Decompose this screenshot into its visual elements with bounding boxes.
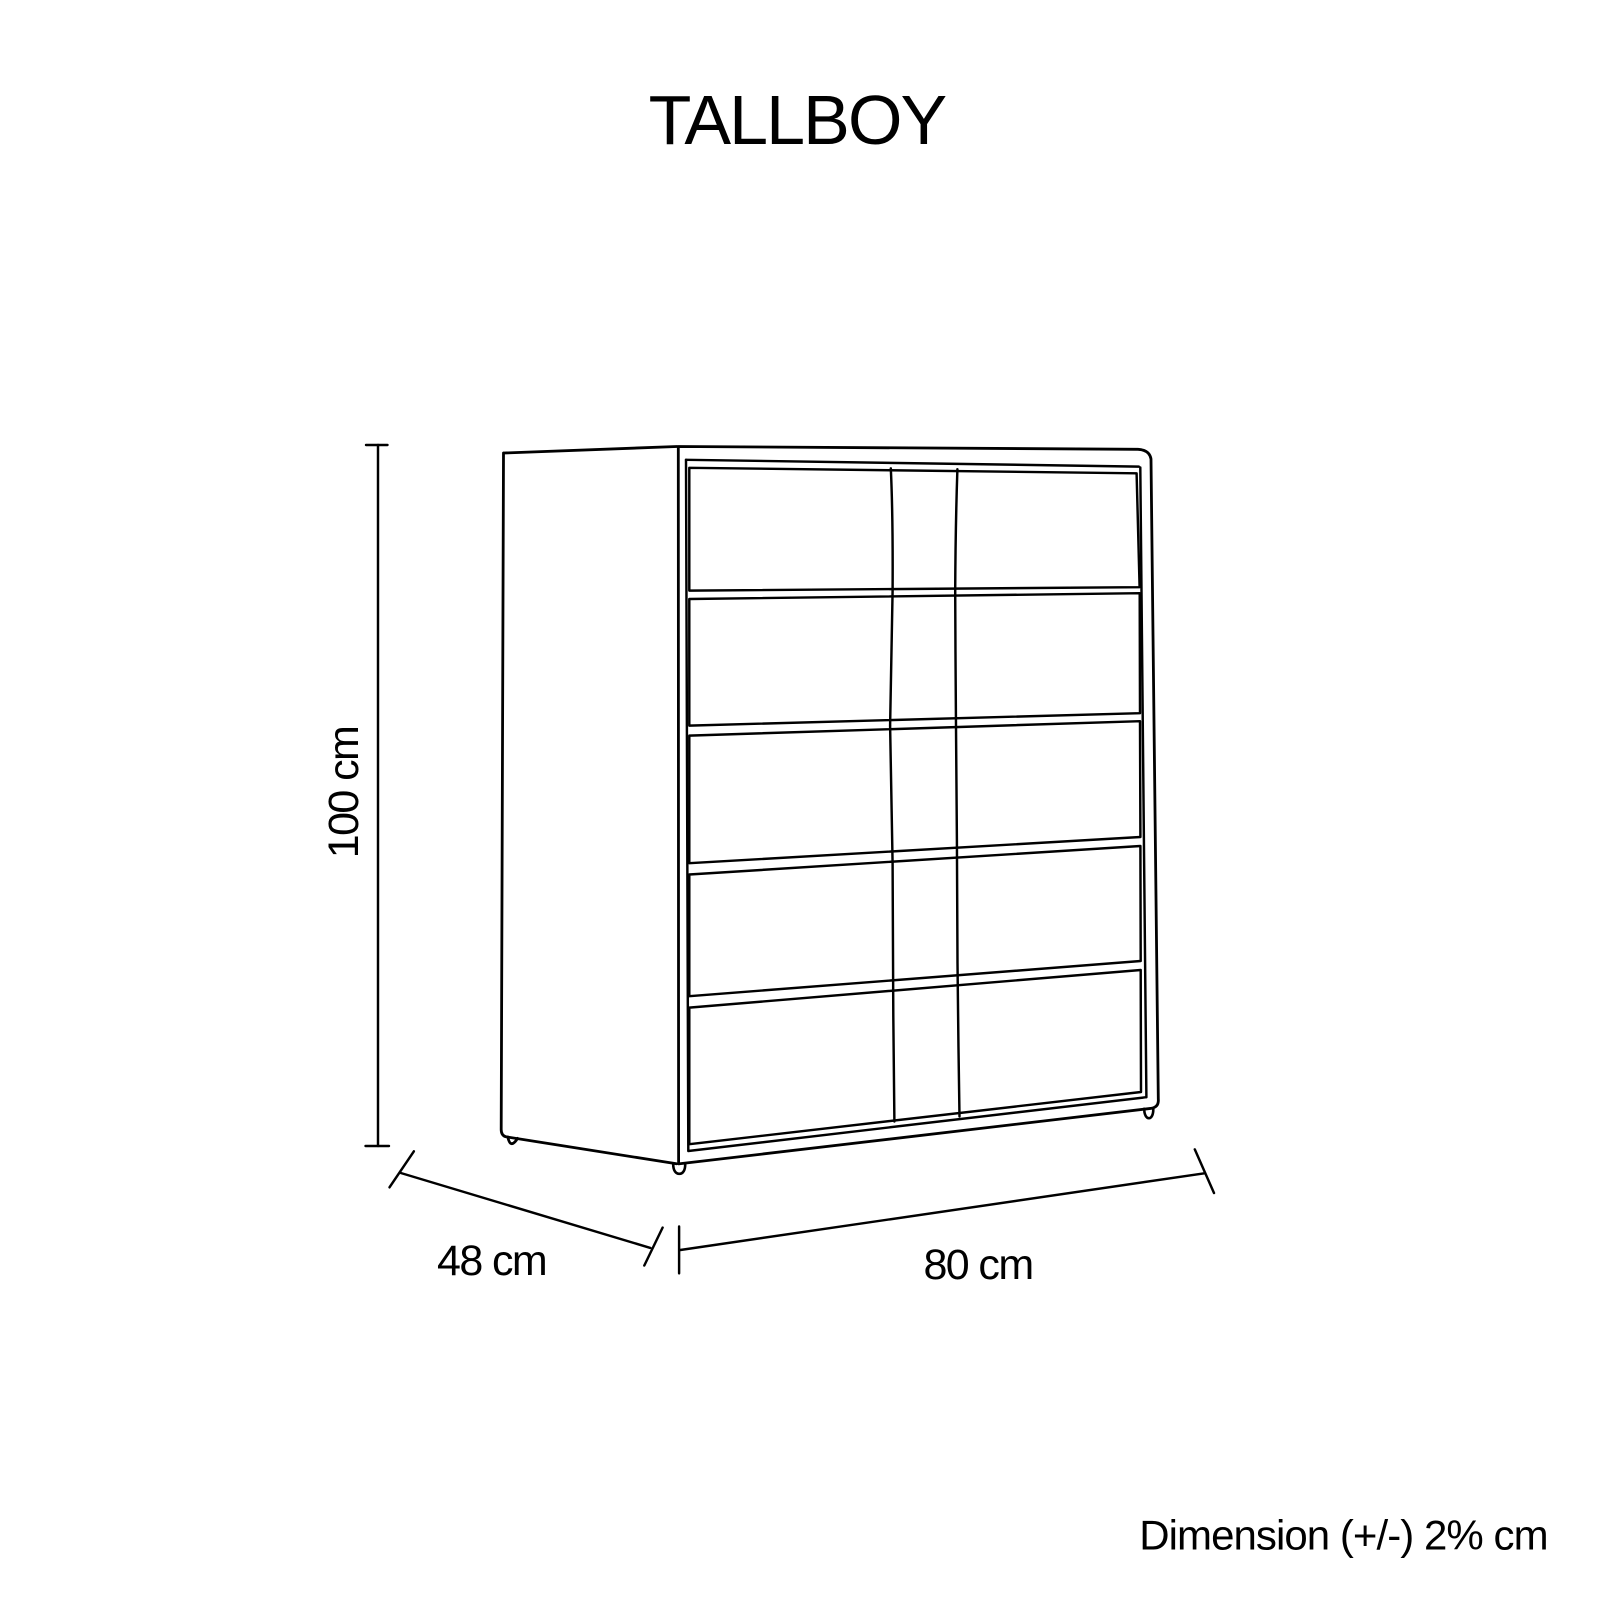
svg-text:Dimension (+/-) 2% cm: Dimension (+/-) 2% cm xyxy=(1139,1512,1547,1559)
svg-text:TALLBOY: TALLBOY xyxy=(649,81,947,159)
svg-text:80 cm: 80 cm xyxy=(923,1241,1032,1289)
svg-text:48 cm: 48 cm xyxy=(437,1237,546,1285)
svg-text:100 cm: 100 cm xyxy=(320,727,368,858)
